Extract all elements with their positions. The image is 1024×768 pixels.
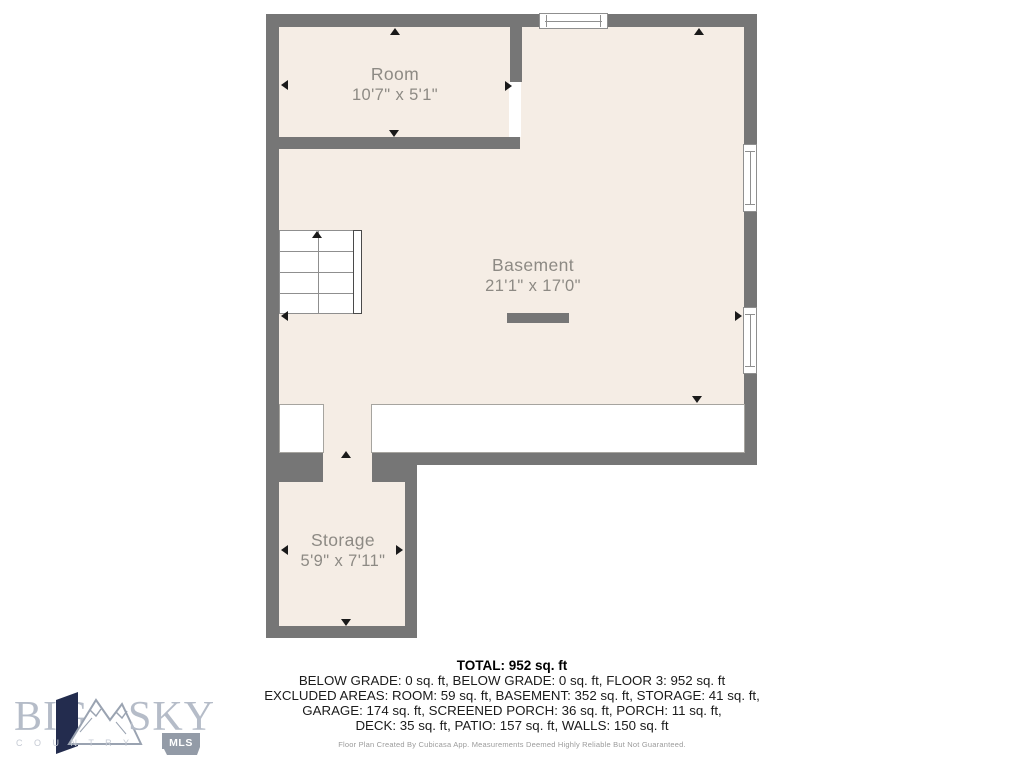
- room-divider-wall: [510, 27, 522, 82]
- corridor-floor: [323, 404, 372, 482]
- room-name: Storage: [281, 529, 405, 551]
- dimension-arrow-down: [692, 396, 702, 403]
- right-wall: [744, 14, 757, 465]
- room-name: Room: [280, 63, 510, 85]
- window-top: [539, 13, 608, 29]
- dimension-arrow-right: [505, 81, 512, 91]
- window-frame-cap: [745, 151, 755, 152]
- total-area-text: TOTAL: 952 sq. ft: [0, 658, 1024, 673]
- top-wall: [266, 14, 757, 27]
- dimension-arrow-left: [281, 545, 288, 555]
- window-right-lower: [743, 307, 757, 374]
- room-name: Basement: [410, 254, 656, 276]
- stair-step-line: [280, 293, 354, 294]
- stair-handrail: [353, 230, 362, 314]
- window-frame-cap: [745, 366, 755, 367]
- under-stair-cutout: [279, 404, 324, 453]
- window-frame-cap: [745, 204, 755, 205]
- dimension-arrow-left: [281, 80, 288, 90]
- unfinished-area-cutout: [371, 404, 745, 453]
- stair-step-line: [280, 272, 354, 273]
- storage-label: Storage 5'9" x 7'11": [281, 529, 405, 572]
- floor-plan: Room 10'7" x 5'1" Basement 21'1" x 17'0"…: [0, 0, 1024, 768]
- room-label: Room 10'7" x 5'1": [280, 63, 510, 106]
- window-frame-cap: [600, 15, 601, 27]
- window-glass-line: [750, 314, 751, 367]
- stair-direction-arrow: [312, 231, 322, 238]
- left-wall: [266, 14, 279, 638]
- room-bottom-wall: [266, 137, 520, 149]
- window-glass-line: [545, 21, 602, 22]
- grade-breakdown-text: BELOW GRADE: 0 sq. ft, BELOW GRADE: 0 sq…: [0, 673, 1024, 688]
- storage-right-wall: [405, 482, 417, 638]
- dimension-arrow-left: [281, 311, 288, 321]
- room-dimensions: 10'7" x 5'1": [280, 85, 510, 106]
- dimension-arrow-down: [389, 130, 399, 137]
- window-frame-cap: [546, 15, 547, 27]
- stair-step-line: [280, 251, 354, 252]
- logo-subtitle: C O U N T R Y: [16, 738, 156, 748]
- corridor-left-wall-block: [279, 452, 323, 482]
- dimension-arrow-up: [694, 28, 704, 35]
- stairs: [279, 230, 355, 314]
- corridor-right-wall-block: [372, 452, 417, 482]
- room-dimensions: 5'9" x 7'11": [281, 551, 405, 572]
- dimension-arrow-right: [735, 311, 742, 321]
- bigsky-mls-logo: BIG SKY C O U N T R Y MLS: [8, 688, 208, 764]
- storage-bottom-wall: [266, 626, 417, 638]
- mls-badge: MLS: [161, 732, 201, 756]
- basement-label: Basement 21'1" x 17'0": [410, 254, 656, 297]
- room-dimensions: 21'1" x 17'0": [410, 276, 656, 297]
- dimension-arrow-right: [396, 545, 403, 555]
- dimension-arrow-up: [390, 28, 400, 35]
- window-frame-cap: [745, 314, 755, 315]
- window-right-upper: [743, 144, 757, 212]
- fixture-bar: [507, 313, 569, 323]
- basement-floor-upper: [520, 27, 744, 149]
- dimension-arrow-up: [341, 451, 351, 458]
- dimension-arrow-down: [341, 619, 351, 626]
- basement-bottom-wall: [372, 452, 757, 465]
- stair-divider-line: [318, 231, 319, 313]
- window-glass-line: [750, 151, 751, 205]
- mls-badge-label: MLS: [161, 737, 201, 749]
